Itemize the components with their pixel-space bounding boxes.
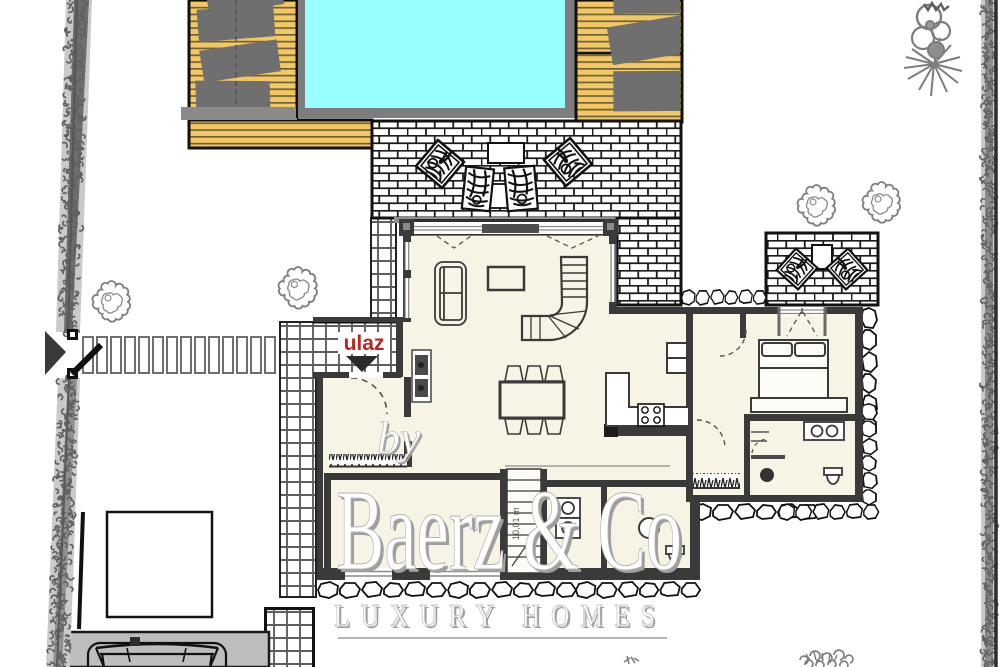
svg-text:by: by: [377, 412, 421, 463]
svg-text:ulaz: ulaz: [344, 332, 385, 355]
svg-text:LUXURY HOMES: LUXURY HOMES: [334, 597, 666, 633]
svg-text:Baerz & Co: Baerz & Co: [336, 467, 682, 594]
